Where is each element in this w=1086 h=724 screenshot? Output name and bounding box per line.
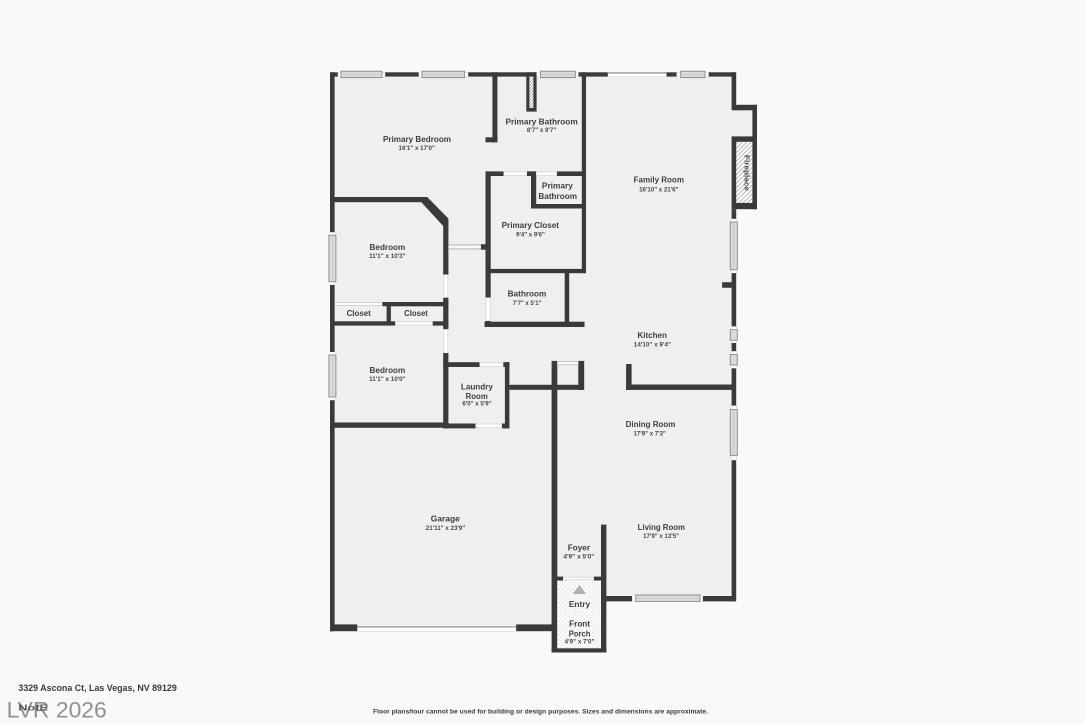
svg-text:14'10" x 9'4": 14'10" x 9'4"	[634, 342, 671, 348]
svg-text:Closet: Closet	[347, 309, 372, 318]
svg-text:11'1" x 10'0": 11'1" x 10'0"	[369, 377, 406, 383]
svg-text:Kitchen: Kitchen	[638, 331, 668, 340]
svg-text:Bathroom: Bathroom	[538, 192, 577, 201]
svg-text:4'9" x 5'0": 4'9" x 5'0"	[563, 555, 594, 561]
svg-text:Primary: Primary	[542, 181, 574, 190]
svg-text:11'1" x 10'3": 11'1" x 10'3"	[369, 254, 406, 260]
svg-text:Bedroom: Bedroom	[370, 243, 406, 252]
svg-text:Bedroom: Bedroom	[370, 366, 406, 375]
svg-text:16'1" x 17'0": 16'1" x 17'0"	[399, 146, 436, 152]
svg-text:21'11" x 23'9": 21'11" x 23'9"	[426, 526, 466, 532]
svg-text:9'4" x 9'6": 9'4" x 9'6"	[516, 232, 545, 238]
svg-text:Primary Closet: Primary Closet	[502, 221, 560, 230]
svg-text:7'7" x 5'1": 7'7" x 5'1"	[513, 301, 542, 307]
svg-text:Garage: Garage	[431, 514, 461, 523]
svg-text:17'9" x 7'3": 17'9" x 7'3"	[634, 432, 667, 438]
svg-text:Bathroom: Bathroom	[508, 290, 547, 299]
svg-text:Fireplace: Fireplace	[743, 155, 752, 191]
svg-text:6'0" x 5'9": 6'0" x 5'9"	[462, 402, 491, 408]
svg-text:NofE: NofE	[18, 702, 48, 712]
svg-text:8'7" x 9'7": 8'7" x 9'7"	[527, 128, 556, 134]
svg-text:Entry: Entry	[569, 600, 591, 609]
svg-text:17'9" x 13'5": 17'9" x 13'5"	[643, 534, 679, 540]
svg-text:Floor plans/tour cannot be use: Floor plans/tour cannot be used for buil…	[373, 708, 708, 715]
svg-text:Front: Front	[569, 620, 590, 629]
svg-text:Closet: Closet	[404, 309, 428, 318]
svg-text:Family Room: Family Room	[634, 175, 684, 184]
svg-text:Porch: Porch	[569, 630, 591, 639]
svg-text:Foyer: Foyer	[568, 544, 590, 553]
svg-text:Room: Room	[466, 392, 488, 401]
svg-text:4'9" x 7'0": 4'9" x 7'0"	[565, 640, 595, 646]
svg-text:Primary Bedroom: Primary Bedroom	[383, 135, 451, 144]
svg-text:16'10" x 21'6": 16'10" x 21'6"	[639, 187, 678, 193]
svg-text:Living Room: Living Room	[638, 523, 685, 532]
svg-text:3329 Ascona Ct, Las Vegas, NV: 3329 Ascona Ct, Las Vegas, NV 89129	[18, 682, 176, 693]
svg-text:Dining Room: Dining Room	[626, 420, 676, 429]
svg-text:Primary Bathroom: Primary Bathroom	[506, 117, 578, 126]
svg-text:Laundry: Laundry	[461, 383, 494, 392]
